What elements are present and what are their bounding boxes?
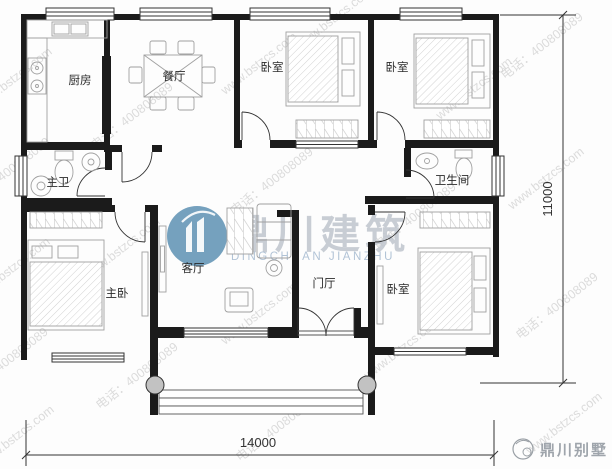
wardrobe <box>420 212 490 228</box>
bed <box>414 34 490 108</box>
room-label-kitchen: 厨房 <box>69 74 92 87</box>
watermark-tile: 电话：400808089 <box>88 80 176 153</box>
dimension-height-label: 11000 <box>540 181 555 216</box>
room-label-bathroom: 卫生间 <box>435 173 470 187</box>
watermark-tile: www.bstzcs.com <box>217 29 299 98</box>
watermark-tile: 电话：400808089 <box>513 270 601 343</box>
room-label-master-bedroom: 主卧 <box>106 287 129 300</box>
door-swing <box>377 112 405 140</box>
wall-segment <box>21 198 112 205</box>
footer-brand-text: 鼎川别墅 <box>540 441 608 459</box>
kitchen-sliding-door <box>102 56 111 134</box>
window <box>492 156 504 196</box>
wardrobe <box>296 120 358 138</box>
floor-plan-page: www.bstzcs.com 电话：400808089 www.bstzcs.c… <box>0 0 612 469</box>
floor-plan-drawing: www.bstzcs.com 电话：400808089 www.bstzcs.c… <box>0 0 612 469</box>
brand-logo-pillar-icon <box>197 217 204 252</box>
armchair <box>225 288 253 312</box>
wardrobe <box>424 120 490 138</box>
porch-column <box>146 376 164 394</box>
window <box>400 8 462 20</box>
wall-segment <box>368 20 374 142</box>
porch <box>146 376 376 414</box>
watermark-tile: www.bstzcs.com <box>0 402 57 469</box>
tv-cabinet <box>142 252 148 316</box>
watermark-tile: 电话：400808089 <box>228 145 316 218</box>
window <box>140 8 212 20</box>
wall-segment <box>466 347 499 355</box>
tv-cabinet <box>377 266 383 324</box>
tv-cabinet <box>159 226 166 292</box>
wall-segment <box>354 308 361 338</box>
wall-segment <box>368 347 394 355</box>
wall-segment <box>234 140 242 148</box>
wall-segment <box>152 145 162 152</box>
window <box>52 353 124 362</box>
bed <box>286 32 360 106</box>
window <box>15 156 27 196</box>
wall-segment <box>21 142 110 150</box>
display-cabinet <box>227 208 253 254</box>
wall-segment <box>268 327 293 338</box>
wall-segment <box>405 140 499 148</box>
window <box>184 328 268 337</box>
door-swing <box>77 168 105 196</box>
window <box>46 8 114 20</box>
room-label-entry-hall: 门厅 <box>313 276 336 290</box>
window <box>296 141 358 148</box>
wall-segment <box>21 205 115 212</box>
wall-segment <box>365 196 499 204</box>
wall-segment <box>270 140 296 148</box>
room-label-bedroom-top-middle: 卧室 <box>261 60 284 74</box>
wall-segment <box>105 152 112 170</box>
room-label-dining: 餐厅 <box>163 69 186 83</box>
wall-segment <box>361 327 375 338</box>
bed <box>418 248 490 334</box>
wardrobe <box>30 212 102 228</box>
kitchen-counter <box>27 20 107 142</box>
porch-steps <box>159 390 363 414</box>
window <box>250 8 330 20</box>
door-swing <box>242 112 270 140</box>
dimension-width-label: 14000 <box>240 435 276 450</box>
room-label-master-bath: 主卫 <box>47 176 70 189</box>
watermark-tile: 电话：400808089 <box>498 10 586 83</box>
wall-segment <box>234 20 240 142</box>
door-swing <box>122 152 152 182</box>
wall-segment <box>358 140 377 148</box>
wall-segment <box>150 327 184 338</box>
porch-column <box>358 376 376 394</box>
wall-segment <box>104 145 122 152</box>
window <box>394 348 466 355</box>
room-label-bedroom-top-right: 卧室 <box>386 60 409 74</box>
room-label-living-room: 客厅 <box>182 261 205 275</box>
washbasin <box>82 153 100 171</box>
room-label-bedroom-bottom-right: 卧室 <box>387 282 410 296</box>
entry-double-door <box>298 308 354 336</box>
wall-segment <box>404 148 411 177</box>
washbasin <box>416 153 438 169</box>
wall-segment <box>368 205 375 215</box>
